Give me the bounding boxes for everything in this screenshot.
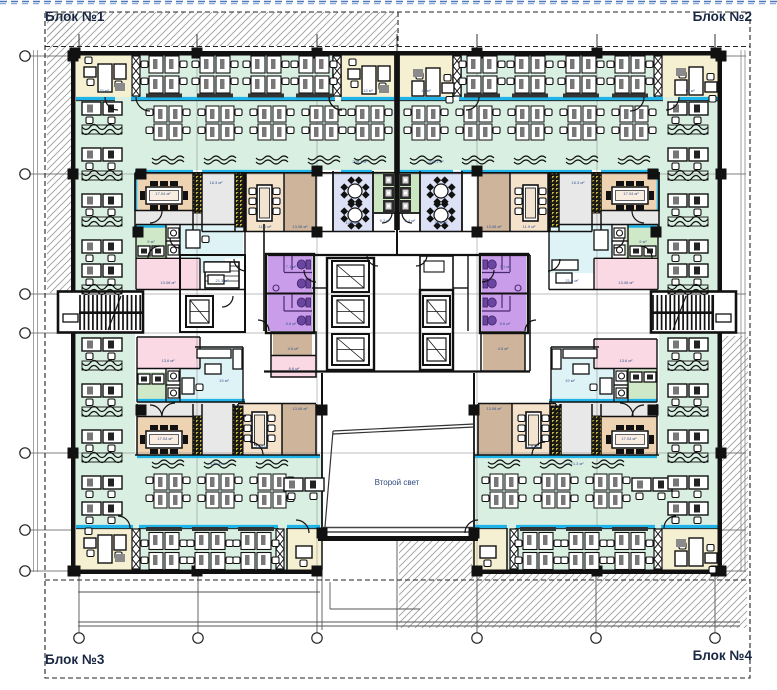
svg-text:Блок №4: Блок №4: [693, 648, 753, 663]
svg-text:21.3 м²: 21.3 м²: [216, 278, 230, 283]
svg-text:19 м²: 19 м²: [565, 378, 575, 383]
svg-text:8.6 м²: 8.6 м²: [286, 321, 297, 326]
svg-text:13.6 м²: 13.6 м²: [162, 358, 176, 363]
svg-text:171.3 м²: 171.3 м²: [568, 461, 584, 466]
svg-text:208.1 м²: 208.1 м²: [352, 159, 368, 164]
svg-text:16.3 м²: 16.3 м²: [572, 180, 586, 185]
svg-text:11.9 м²: 11.9 м²: [526, 444, 539, 449]
svg-text:16.3 м²: 16.3 м²: [210, 180, 224, 185]
svg-text:13 м²: 13 м²: [363, 88, 373, 93]
svg-text:7.1 м²: 7.1 м²: [286, 264, 297, 269]
svg-text:17.04 м²: 17.04 м²: [157, 436, 173, 441]
svg-text:13.6 м²: 13.6 м²: [620, 358, 634, 363]
svg-text:13.08 м²: 13.08 м²: [486, 224, 502, 229]
svg-text:13.08 м²: 13.08 м²: [292, 224, 308, 229]
svg-text:11.9 м²: 11.9 м²: [256, 444, 269, 449]
svg-text:13 м²: 13 м²: [421, 88, 431, 93]
svg-text:171.3 м²: 171.3 м²: [210, 461, 226, 466]
svg-text:9 м²: 9 м²: [639, 239, 647, 244]
svg-text:17.04 м²: 17.04 м²: [623, 191, 639, 196]
svg-text:7.1 м²: 7.1 м²: [500, 264, 511, 269]
svg-text:11.9 м²: 11.9 м²: [523, 224, 536, 229]
svg-text:13.08 м²: 13.08 м²: [160, 280, 176, 285]
svg-text:5.4 м²: 5.4 м²: [405, 218, 416, 223]
svg-text:Блок №1: Блок №1: [45, 9, 105, 24]
svg-text:17.04 м²: 17.04 м²: [621, 436, 637, 441]
svg-text:Блок №3: Блок №3: [45, 652, 105, 667]
svg-text:17.8 м²: 17.8 м²: [435, 220, 449, 225]
svg-text:5.2 м²: 5.2 м²: [380, 218, 391, 223]
svg-text:13.08 м²: 13.08 м²: [292, 406, 308, 411]
svg-text:13.08 м²: 13.08 м²: [618, 280, 634, 285]
svg-text:8.6 м²: 8.6 м²: [500, 321, 511, 326]
svg-text:Блок №2: Блок №2: [693, 9, 752, 24]
svg-text:19 м²: 19 м²: [219, 378, 229, 383]
svg-text:Второй свет: Второй свет: [375, 478, 420, 487]
svg-text:6.6 м²: 6.6 м²: [289, 366, 300, 371]
svg-text:4.5 м²: 4.5 м²: [498, 346, 509, 351]
svg-text:21.3 м²: 21.3 м²: [566, 278, 580, 283]
svg-text:17.04 м²: 17.04 м²: [155, 191, 171, 196]
svg-text:17.8 м²: 17.8 м²: [346, 220, 360, 225]
svg-text:9 м²: 9 м²: [147, 239, 155, 244]
svg-text:11.9 м²: 11.9 м²: [259, 224, 272, 229]
svg-text:208.1 м²: 208.1 м²: [428, 159, 444, 164]
svg-text:15 м²: 15 м²: [99, 88, 109, 93]
svg-text:13.08 м²: 13.08 м²: [486, 406, 502, 411]
svg-text:15 м²: 15 м²: [685, 88, 695, 93]
svg-text:4.5 м²: 4.5 м²: [288, 346, 299, 351]
